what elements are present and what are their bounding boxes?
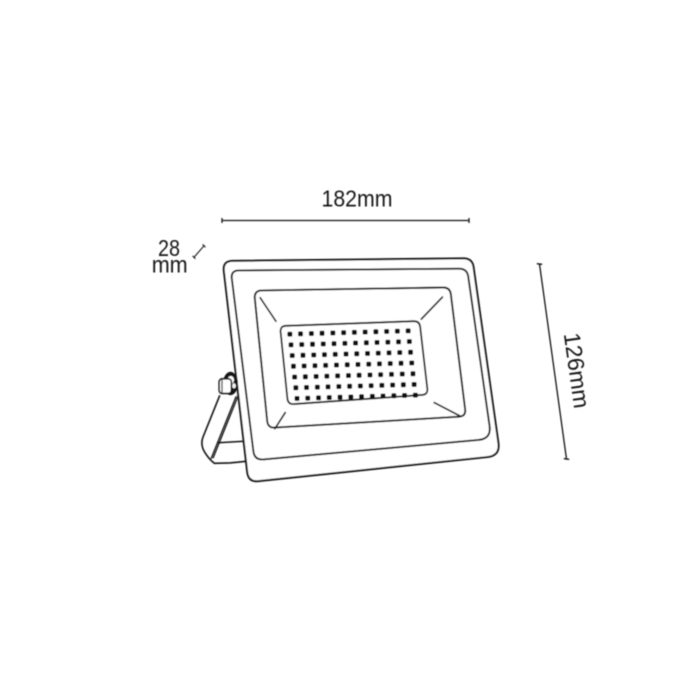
svg-text:mm: mm	[152, 252, 188, 278]
svg-text:182mm: 182mm	[322, 186, 393, 212]
